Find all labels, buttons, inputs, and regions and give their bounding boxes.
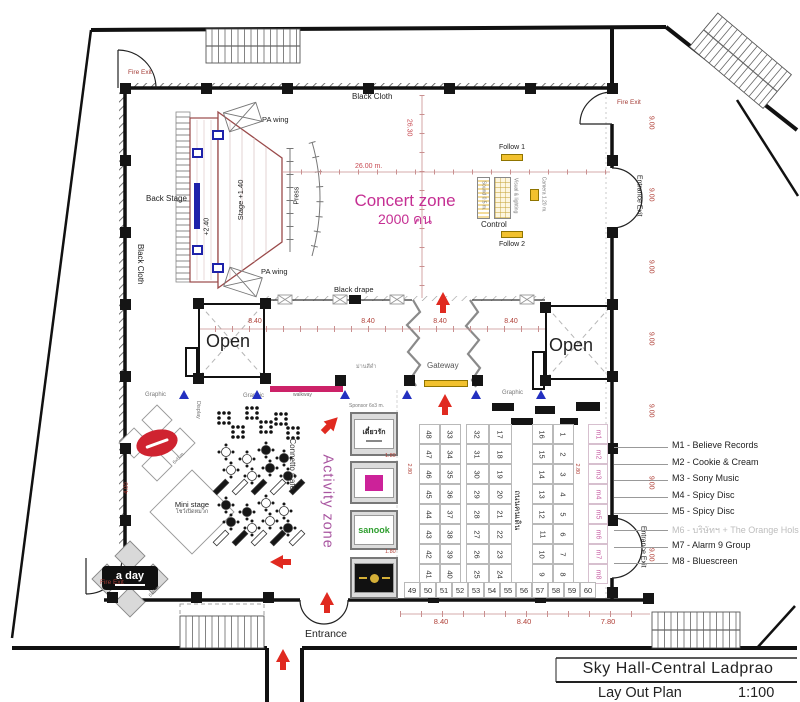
- title-drawing: Lay Out Plan: [598, 686, 682, 701]
- m-booth-cell: m4: [588, 484, 608, 504]
- booth-cell: 55: [500, 582, 516, 598]
- booth-number: 36: [446, 490, 455, 498]
- lighting-console: [494, 177, 511, 219]
- m-booth-cell: m7: [588, 544, 608, 564]
- booth-cell: 52: [452, 582, 468, 598]
- sanook-logo: sanook: [354, 515, 394, 545]
- booth-number: 57: [536, 586, 544, 595]
- legend-item: M3 - Sony Music: [672, 473, 739, 483]
- m-booth-number: m1: [594, 429, 601, 439]
- booth-number: 16: [538, 430, 547, 438]
- booth-cell: 11: [532, 524, 553, 544]
- booth-number: 24: [496, 570, 505, 578]
- concert-zone-title: Concert zone: [338, 192, 472, 210]
- booth-number: 44: [425, 510, 434, 518]
- booth-number: 21: [496, 510, 505, 518]
- gold-circle-icon: [370, 574, 379, 583]
- mini-stage-sub: โชว์เปิดหมวก: [158, 510, 226, 516]
- booth-cell: 16: [532, 424, 553, 444]
- booth-number: 28: [473, 510, 482, 518]
- legend-item: M4 - Spicy Disc: [672, 490, 735, 500]
- concert-zone-capacity: 2000 คน: [338, 212, 472, 227]
- truss-marker-triangle: [402, 390, 412, 399]
- black-curtain-label: ม่านสีดำ: [356, 365, 377, 371]
- sponsor-booth-1: เดี๋ยวรัก: [350, 412, 398, 456]
- booth-cell: 35: [440, 464, 461, 484]
- booth-cell: 7: [553, 544, 574, 564]
- booth-cell: 51: [436, 582, 452, 598]
- booth-cell: 20: [489, 484, 512, 504]
- booth-cell: 3: [553, 464, 574, 484]
- m-booth-cell: m2: [588, 444, 608, 464]
- column-marker: [540, 302, 551, 313]
- booth-number: 18: [496, 450, 505, 458]
- camera-riser: [530, 189, 539, 201]
- booth-number: 48: [425, 430, 434, 438]
- walkway-label: walkway: [293, 393, 312, 398]
- sponsor-booth-3-label: sanook: [358, 525, 390, 535]
- logo-underline: [366, 440, 382, 442]
- column-marker: [193, 298, 204, 309]
- booth-number: 23: [496, 550, 505, 558]
- booth-number: 5: [559, 512, 568, 516]
- column-marker: [607, 371, 618, 382]
- bay-dimension: 9.00: [647, 543, 654, 567]
- stairs-top-right: [690, 13, 792, 108]
- booth-number: 27: [473, 530, 482, 538]
- gold-bar-icon: [382, 577, 390, 579]
- graphic-board: [535, 406, 555, 414]
- booth-number: 14: [538, 470, 547, 478]
- legend-item: M6 - บริษัทฯ + The Orange Hols: [672, 523, 799, 537]
- booth-number: 40: [446, 570, 455, 578]
- column-marker: [120, 371, 131, 382]
- press-label: Press: [293, 180, 300, 212]
- booth-cell: 58: [548, 582, 564, 598]
- booth-number: 58: [552, 586, 560, 595]
- thai-text-logo: เดี๋ยวรัก: [354, 419, 394, 449]
- booth-number: 17: [496, 430, 505, 438]
- graphic-board: [511, 418, 533, 425]
- pink-square: [365, 475, 383, 491]
- booth-number: 15: [538, 450, 547, 458]
- booth-number: 47: [425, 450, 434, 458]
- camera-label: Camera 1.20 m.: [540, 171, 545, 219]
- aisle-dimension: 1.80: [385, 550, 396, 556]
- column-marker: [607, 443, 618, 454]
- pink-square-logo: [354, 468, 394, 498]
- booth-number: 45: [425, 490, 434, 498]
- legend-leader-line: [614, 563, 668, 564]
- fire-exit-label-bottom-left: Fire Exit: [100, 580, 124, 587]
- booth-number: 4: [559, 492, 568, 496]
- booth-number: 37: [446, 510, 455, 518]
- booth-number: 59: [568, 586, 576, 595]
- booth-number: 32: [473, 430, 482, 438]
- booth-number: 55: [504, 586, 512, 595]
- booth-cell: 40: [440, 564, 461, 584]
- open-left-label: Open: [206, 332, 250, 351]
- bay-dimension: 7.80: [588, 618, 628, 626]
- booth-cell: 42: [419, 544, 440, 564]
- stage-riser-label: +2.40: [203, 207, 210, 247]
- booth-cell: 54: [484, 582, 500, 598]
- booth-cell: 49: [404, 582, 420, 598]
- booth-cell: 57: [532, 582, 548, 598]
- legend-leader-line: [614, 447, 668, 448]
- column-marker: [607, 155, 618, 166]
- column-marker: [282, 83, 293, 94]
- floor-plan: เดี๋ยวรัก sanook a day Fire Exit Fire Ex…: [0, 0, 800, 702]
- booth-number: 3: [559, 472, 568, 476]
- column-marker: [260, 298, 271, 309]
- booth-number: 31: [473, 450, 482, 458]
- booth-number: 11: [538, 530, 547, 538]
- mini-stage-label: Mini stage โชว์เปิดหมวก: [158, 501, 226, 516]
- legend-leader-line: [614, 530, 668, 531]
- title-scale: 1:100: [738, 686, 774, 701]
- booth-number: 29: [473, 490, 482, 498]
- black-gold-emblem-logo: [354, 563, 394, 593]
- booth-cell: 30: [466, 464, 489, 484]
- booth-number: 10: [538, 550, 547, 558]
- column-marker: [607, 587, 618, 598]
- sound-console-label: Sound 0.5 m.: [480, 172, 485, 220]
- booth-cell: 36: [440, 484, 461, 504]
- booth-number: 43: [425, 530, 434, 538]
- booth-cell: 46: [419, 464, 440, 484]
- m-booth-cell: m6: [588, 524, 608, 544]
- graphic-label: Graphic: [502, 390, 523, 396]
- legend-leader-line: [614, 480, 668, 481]
- legend-leader-line: [614, 513, 668, 514]
- logo-squiggle: [145, 437, 169, 448]
- m-booth-number: m7: [594, 549, 601, 559]
- sponsor-booth-1-label: เดี๋ยวรัก: [363, 427, 386, 438]
- booth-cell: 9: [532, 564, 553, 584]
- bay-dimension: 9.00: [647, 399, 654, 423]
- bay-dimension: 8.40: [504, 618, 544, 626]
- booth-cell: 15: [532, 444, 553, 464]
- booth-number: 20: [496, 490, 505, 498]
- booth-cell: 29: [466, 484, 489, 504]
- gateway-curtains: [407, 300, 480, 387]
- sponsor-size-label: Sponsor 6x3 m.: [349, 404, 384, 409]
- column-marker: [201, 83, 212, 94]
- column-marker: [120, 515, 131, 526]
- booth-cell: 37: [440, 504, 461, 524]
- booth-number: 56: [520, 586, 528, 595]
- lighting-console-label: Visual & lighting: [512, 172, 517, 220]
- bay-dimension: 8.40: [421, 618, 461, 626]
- bay-dimension: 8.40: [496, 318, 526, 325]
- column-marker: [444, 83, 455, 94]
- booth-cell: 13: [532, 484, 553, 504]
- bay-dimension: 9.00: [647, 255, 654, 279]
- booth-number: 42: [425, 550, 434, 558]
- booth-number: 35: [446, 470, 455, 478]
- booth-cell: 25: [466, 564, 489, 584]
- booth-cell: 32: [466, 424, 489, 444]
- booth-number: 7: [559, 552, 568, 556]
- column-marker: [404, 375, 415, 386]
- follow-spot-1: [501, 154, 523, 161]
- booth-number: 9: [538, 572, 547, 576]
- legend-item: M2 - Cookie & Cream: [672, 457, 759, 467]
- booth-cell: 14: [532, 464, 553, 484]
- black-drape-line: [265, 295, 545, 304]
- column-marker: [363, 83, 374, 94]
- booth-cell: 50: [420, 582, 436, 598]
- booth-cell: 43: [419, 524, 440, 544]
- truss-marker-triangle: [471, 390, 481, 399]
- m-booth-cell: m3: [588, 464, 608, 484]
- concert-zone-label: Concert zone 2000 คน: [338, 192, 472, 227]
- fire-exit-label-top-left: Fire Exit: [128, 70, 152, 77]
- m-booth-cell: m5: [588, 504, 608, 524]
- cafe-label: Connetto Cafe: [288, 424, 296, 504]
- booth-cell: 23: [489, 544, 512, 564]
- bay-dimension: 9.00: [647, 111, 654, 135]
- title-project: Sky Hall-Central Ladprao: [560, 661, 796, 678]
- sponsor-booth-2: [350, 461, 398, 504]
- booth-number: 50: [424, 586, 432, 595]
- truss-marker-triangle: [179, 390, 189, 399]
- booth-number: 19: [496, 470, 505, 478]
- booth-cell: 41: [419, 564, 440, 584]
- booth-cell: 12: [532, 504, 553, 524]
- bay-dimension: 8.40: [353, 318, 383, 325]
- booth-number: 34: [446, 450, 455, 458]
- booth-cell: 27: [466, 524, 489, 544]
- booth-number: 12: [538, 510, 547, 518]
- booth-cell: 5: [553, 504, 574, 524]
- column-marker: [607, 83, 618, 94]
- booth-cell: 24: [489, 564, 512, 584]
- m-booth-number: m2: [594, 449, 601, 459]
- pa-wing-top-label: PA wing: [262, 116, 289, 124]
- booth-cell: 34: [440, 444, 461, 464]
- booth-number: 8: [559, 572, 568, 576]
- black-cloth-top-label: Black Cloth: [352, 93, 392, 101]
- booth-cell: 38: [440, 524, 461, 544]
- booth-number: 13: [538, 490, 547, 498]
- legend-item: M5 - Spicy Disc: [672, 506, 735, 516]
- booth-cell: 1: [553, 424, 574, 444]
- fire-exit-label-top-right: Fire Exit: [617, 100, 641, 107]
- column-marker: [120, 443, 131, 454]
- legend-item: M1 - Believe Records: [672, 440, 758, 450]
- booth-cell: 6: [553, 524, 574, 544]
- booth-cell: 60: [580, 582, 596, 598]
- booth-cell: 17: [489, 424, 512, 444]
- display-label: Display: [194, 390, 200, 430]
- follow-spot-2: [501, 231, 523, 238]
- column-marker: [191, 592, 202, 603]
- booth-number: 51: [440, 586, 448, 595]
- legend-leader-line: [614, 497, 668, 498]
- booth-cell: 26: [466, 544, 489, 564]
- truss-marker-triangle: [536, 390, 546, 399]
- entrance-exit-label-top: Entrance Exit: [635, 168, 642, 224]
- booth-cell: 53: [468, 582, 484, 598]
- column-marker: [607, 515, 618, 526]
- booth-number: 46: [425, 470, 434, 478]
- booth-number: 53: [472, 586, 480, 595]
- gold-bar-icon: [359, 577, 367, 579]
- booth-cell: 39: [440, 544, 461, 564]
- backstage-label: Back Stage: [146, 195, 187, 203]
- pa-wing-bottom-label: PA wing: [261, 268, 288, 276]
- sponsor-booth-4: [350, 557, 398, 599]
- column-marker: [607, 227, 618, 238]
- column-marker: [525, 83, 536, 94]
- booth-number: 39: [446, 550, 455, 558]
- booth-number: 2: [559, 452, 568, 456]
- column-marker: [260, 373, 271, 384]
- follow2-label: Follow 2: [499, 241, 525, 248]
- m-booth-number: m6: [594, 529, 601, 539]
- column-marker: [540, 375, 551, 386]
- column-marker: [120, 227, 131, 238]
- booth-number: 38: [446, 530, 455, 538]
- booth-cell: 2: [553, 444, 574, 464]
- sponsor-booth-3: sanook: [350, 510, 398, 550]
- column-marker: [607, 299, 618, 310]
- column-marker: [120, 155, 131, 166]
- booth-number: 26: [473, 550, 482, 558]
- bay-dimension: 9.00: [647, 327, 654, 351]
- m-booth-number: m5: [594, 509, 601, 519]
- graphic-board: [576, 402, 600, 411]
- booth-cell: 18: [489, 444, 512, 464]
- black-cloth-left-label: Black Cloth: [136, 234, 144, 294]
- booth-number: 49: [408, 586, 416, 595]
- mini-stage-title: Mini stage: [158, 501, 226, 509]
- booth-cell: 28: [466, 504, 489, 524]
- booth-cell: 19: [489, 464, 512, 484]
- column-marker: [643, 593, 654, 604]
- m-booth-number: m3: [594, 469, 601, 479]
- walking-street-label: ถนนคนเดิน: [513, 480, 521, 540]
- black-drape-label: Black drape: [334, 286, 374, 294]
- booth-number: 30: [473, 470, 482, 478]
- m-booth-number: m8: [594, 569, 601, 579]
- m-booth-cell: m8: [588, 564, 608, 584]
- m-booth-number: m4: [594, 489, 601, 499]
- booth-number: 25: [473, 570, 482, 578]
- booth-number: 52: [456, 586, 464, 595]
- column-marker: [193, 373, 204, 384]
- column-marker: [263, 592, 274, 603]
- truss-marker-triangle: [252, 390, 262, 399]
- column-marker: [472, 375, 483, 386]
- booth-cell: 8: [553, 564, 574, 584]
- column-marker: [120, 83, 131, 94]
- booth-cell: 33: [440, 424, 461, 444]
- bay-dimension: 9.00: [647, 183, 654, 207]
- booth-number: 60: [584, 586, 592, 595]
- entrance-label: Entrance: [305, 629, 347, 640]
- column-marker: [335, 375, 346, 386]
- bay-dimension: 8.40: [240, 318, 270, 325]
- booth-cell: 56: [516, 582, 532, 598]
- booth-number: 1: [559, 432, 568, 436]
- plan-geometry: [0, 0, 800, 702]
- booth-cell: 45: [419, 484, 440, 504]
- legend-item: M7 - Alarm 9 Group: [672, 540, 751, 550]
- open-right-label: Open: [549, 336, 593, 355]
- activity-zone-label: Activity zone: [319, 437, 334, 567]
- column-marker: [107, 592, 118, 603]
- hall-width-dimension: 26.00 m.: [355, 163, 382, 170]
- booth-cell: 31: [466, 444, 489, 464]
- booth-number: 41: [425, 570, 434, 578]
- booth-number: 33: [446, 430, 455, 438]
- booth-cell: 59: [564, 582, 580, 598]
- d400-dimension: 4.00: [124, 476, 130, 500]
- column-marker: [120, 299, 131, 310]
- truss-marker-triangle: [340, 390, 350, 399]
- booth-cell: 22: [489, 524, 512, 544]
- booth-number: 22: [496, 530, 505, 538]
- control-label: Control: [481, 221, 507, 229]
- follow1-label: Follow 1: [499, 144, 525, 151]
- bay-dimension: 9.00: [647, 471, 654, 495]
- booth-number: 54: [488, 586, 496, 595]
- hall-width2-dimension: 26.30: [405, 115, 412, 141]
- booth-cell: 48: [419, 424, 440, 444]
- booth-cell: 10: [532, 544, 553, 564]
- legend-leader-line: [614, 547, 668, 548]
- booth-number: 6: [559, 532, 568, 536]
- booth-cell: 21: [489, 504, 512, 524]
- stage-platform-label: Stage +1.40: [237, 168, 245, 232]
- booth-cell: 44: [419, 504, 440, 524]
- aisle-dimension: 1.80: [385, 454, 396, 460]
- graphic-board: [492, 403, 514, 411]
- m-booth-cell: m1: [588, 424, 608, 444]
- legend-item: M8 - Bluescreen: [672, 556, 738, 566]
- booth-cell: 4: [553, 484, 574, 504]
- booth-cell: 47: [419, 444, 440, 464]
- gateway-bar: [424, 380, 468, 387]
- graphic-label: Graphic: [145, 392, 166, 398]
- gateway-label: Gateway: [427, 362, 459, 370]
- legend-leader-line: [614, 464, 668, 465]
- bay-dimension: 8.40: [425, 318, 455, 325]
- aisle-dimension: 2.80: [405, 459, 411, 479]
